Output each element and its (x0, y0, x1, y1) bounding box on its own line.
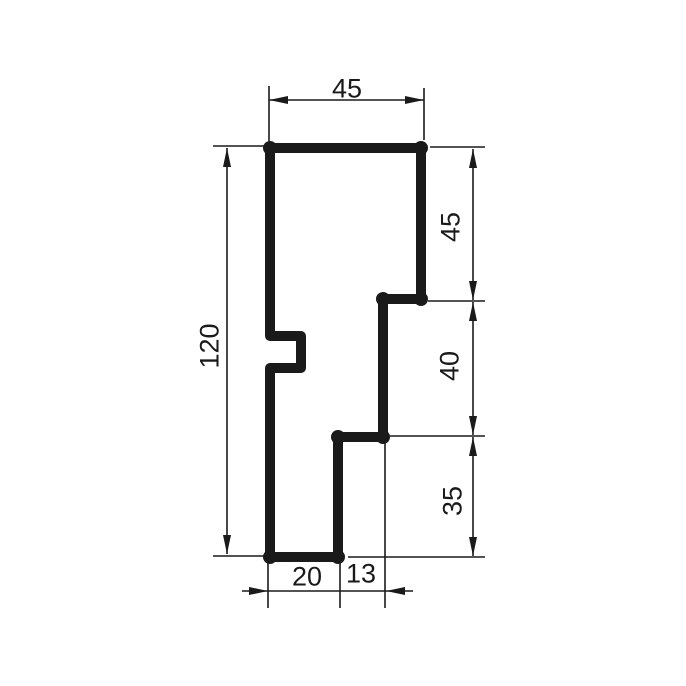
arrowhead-down-icon (469, 281, 477, 300)
arrowhead-right-icon (249, 587, 268, 595)
dimension-label-top-width: 45 (332, 74, 362, 104)
dimension-label-right-lower: 35 (438, 486, 468, 516)
arrowhead-left-icon (386, 587, 405, 595)
arrowhead-up-icon (469, 302, 477, 321)
arrowhead-up-icon (469, 437, 477, 456)
profile-corner-dot (263, 550, 277, 564)
dimension-label-bottom-left: 20 (292, 562, 322, 592)
arrowhead-up-icon (469, 149, 477, 168)
arrowhead-down-icon (469, 416, 477, 435)
profile-corner-dot (414, 292, 428, 306)
profile-corner-dot (376, 292, 390, 306)
drawing-canvas: 454540351202013 (0, 0, 686, 686)
profile-corner-dot (263, 141, 277, 155)
arrowhead-down-icon (469, 537, 477, 556)
profile-corner-dot (331, 430, 345, 444)
dimension-label-right-middle: 40 (435, 351, 465, 381)
dimension-label-right-upper: 45 (436, 212, 466, 242)
arrowhead-right-icon (405, 96, 424, 104)
dimension-bottom-left (242, 563, 413, 608)
dimension-label-bottom-right: 13 (346, 559, 376, 589)
arrowhead-up-icon (223, 148, 231, 167)
profile-corner-dot (331, 550, 345, 564)
arrowhead-left-icon (269, 96, 288, 104)
profile-corner-dot (414, 141, 428, 155)
profile-technical-drawing: 454540351202013 (0, 0, 686, 686)
profile-outline (263, 141, 428, 564)
dimension-annotations (213, 86, 485, 608)
profile-corner-dot (376, 430, 390, 444)
arrowhead-down-icon (223, 535, 231, 554)
dimension-label-left-total-height: 120 (195, 323, 225, 368)
profile-outline-path (270, 148, 421, 557)
